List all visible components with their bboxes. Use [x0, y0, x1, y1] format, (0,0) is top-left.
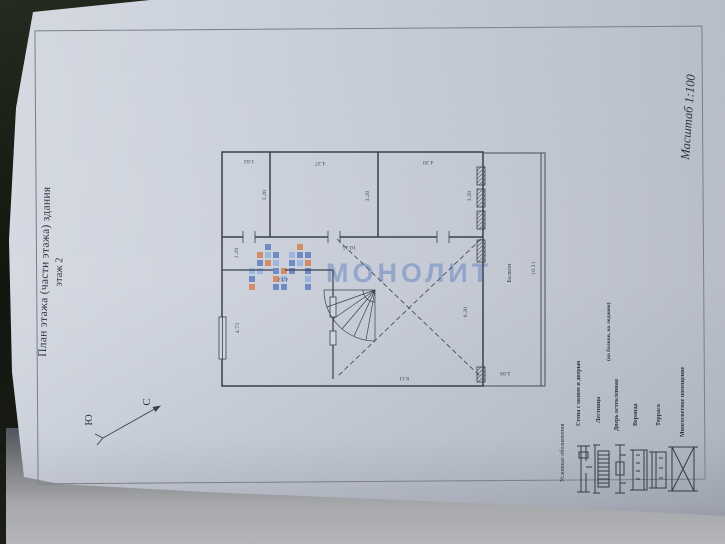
photo-of-floor-plan-sheet: План этажа (части этажа) здания этаж 2 М… — [0, 0, 725, 544]
wall-window-door-icon — [573, 443, 593, 495]
compass-arrow-icon — [78, 392, 178, 456]
room-dimension: 3.20 — [466, 184, 474, 208]
legend-item-label: Стена с окном и дверью — [575, 330, 583, 426]
legend-item-label: Многосветное помещение — [679, 333, 687, 437]
room-dimension: 3.20 — [261, 183, 269, 207]
glazed-door-icon — [611, 443, 629, 495]
legend-heading: Условные обозначения — [559, 398, 567, 482]
legend-item-label: Терраса — [655, 386, 663, 426]
legend-item-label: (на балкон, на лоджию) — [605, 271, 613, 361]
room-dimension: 10.45 — [337, 243, 361, 251]
legend-item-label: Лестница — [595, 383, 603, 423]
room-dimension: 4.27 — [308, 159, 332, 167]
room-dimension: 1.62 — [237, 157, 261, 165]
room-dimension: 1.29 — [233, 241, 241, 265]
legend-item-label: Дверь остекленная — [613, 335, 621, 431]
room-dimension: 10.21 — [530, 256, 538, 280]
room-dimension: 4.12 — [271, 275, 295, 283]
legend-item-label: Веранда — [632, 386, 640, 426]
multi-light-room-icon — [666, 443, 700, 495]
room-dimension: 4.20 — [416, 158, 440, 166]
page-title: План этажа (части этажа) здания этаж 2 — [36, 156, 78, 389]
stairs-icon — [592, 443, 612, 495]
title-line-2: этаж 2 — [51, 156, 68, 388]
room-dimension: 6.20 — [462, 300, 470, 324]
room-dimension: 8.11 — [392, 374, 416, 382]
multi-light-room-diagonals — [337, 239, 481, 377]
room-dimension: 3.20 — [364, 184, 372, 208]
room-dimension: 2.66 — [493, 369, 517, 377]
room-dimension: 4.73 — [234, 316, 242, 340]
balcony-label: Балкон — [506, 258, 514, 288]
